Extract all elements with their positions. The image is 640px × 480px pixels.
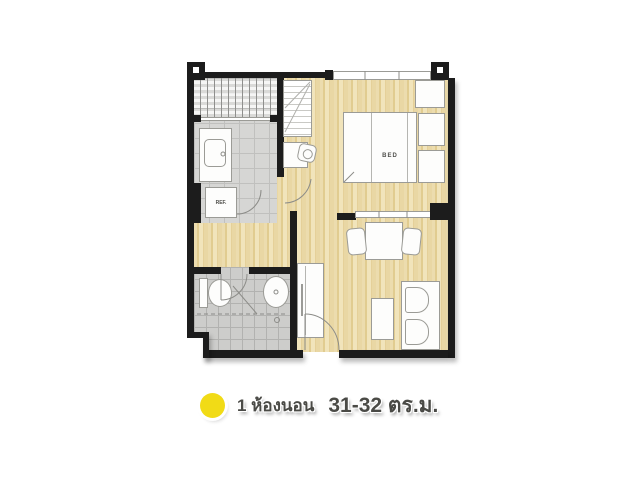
wall bbox=[194, 267, 221, 274]
nightstand bbox=[418, 113, 445, 146]
wall bbox=[249, 267, 291, 274]
legend: 1 ห้องนอน 31-32 ตร.ม. bbox=[200, 389, 438, 422]
wardrobe bbox=[283, 80, 312, 137]
bed-label: BED bbox=[382, 153, 398, 159]
legend-unit-type: 1 ห้องนอน bbox=[237, 392, 314, 419]
wall bbox=[339, 350, 448, 358]
bathroom-basin bbox=[263, 276, 289, 308]
cabinet-line bbox=[305, 266, 306, 335]
coffee-table bbox=[371, 298, 394, 340]
wall-column bbox=[187, 183, 201, 223]
kitchen-sink bbox=[204, 139, 226, 167]
wall bbox=[430, 203, 448, 220]
stool-seat bbox=[302, 148, 314, 160]
bed: BED bbox=[343, 112, 417, 183]
wall-stub bbox=[194, 115, 201, 122]
dining-table bbox=[365, 222, 403, 260]
toilet-bowl bbox=[208, 279, 232, 307]
refrigerator: REF. bbox=[205, 187, 237, 218]
floor-plan: REF. BED bbox=[187, 62, 455, 365]
column-core bbox=[437, 67, 443, 73]
bedroom-window bbox=[333, 71, 431, 80]
toilet-tank bbox=[199, 278, 208, 308]
kitchen-counter-edge bbox=[194, 117, 277, 121]
corner-cabinet bbox=[415, 80, 445, 108]
column-core bbox=[193, 67, 199, 73]
column bbox=[187, 62, 205, 80]
wall bbox=[337, 213, 356, 220]
legend-unit-size: 31-32 ตร.ม. bbox=[328, 389, 438, 422]
column bbox=[431, 62, 449, 80]
living-partition-window bbox=[355, 211, 431, 218]
wall bbox=[448, 78, 455, 358]
sofa-cushion bbox=[405, 319, 429, 345]
bathroom-wall bbox=[290, 211, 297, 352]
plan-notch bbox=[187, 338, 203, 365]
dining-chair bbox=[401, 227, 423, 256]
cabinet-handle bbox=[301, 284, 303, 316]
wall bbox=[203, 332, 209, 358]
dining-chair bbox=[346, 227, 368, 256]
sofa bbox=[401, 281, 440, 350]
entry-cabinet bbox=[297, 263, 324, 338]
bed-label-wrap: BED bbox=[372, 144, 408, 162]
wall bbox=[325, 70, 333, 80]
wall bbox=[201, 72, 325, 78]
canvas: { "floorplan": { "bed_label": "BED", "fr… bbox=[0, 0, 640, 480]
nightstand bbox=[418, 150, 445, 183]
kitchen-counter bbox=[199, 128, 232, 182]
refrigerator-label: REF. bbox=[216, 200, 227, 206]
wall-stub bbox=[270, 115, 277, 122]
utility-hatched-area bbox=[194, 78, 277, 117]
sofa-cushion bbox=[405, 287, 429, 313]
wall bbox=[203, 350, 303, 358]
legend-bullet-icon bbox=[200, 393, 225, 418]
